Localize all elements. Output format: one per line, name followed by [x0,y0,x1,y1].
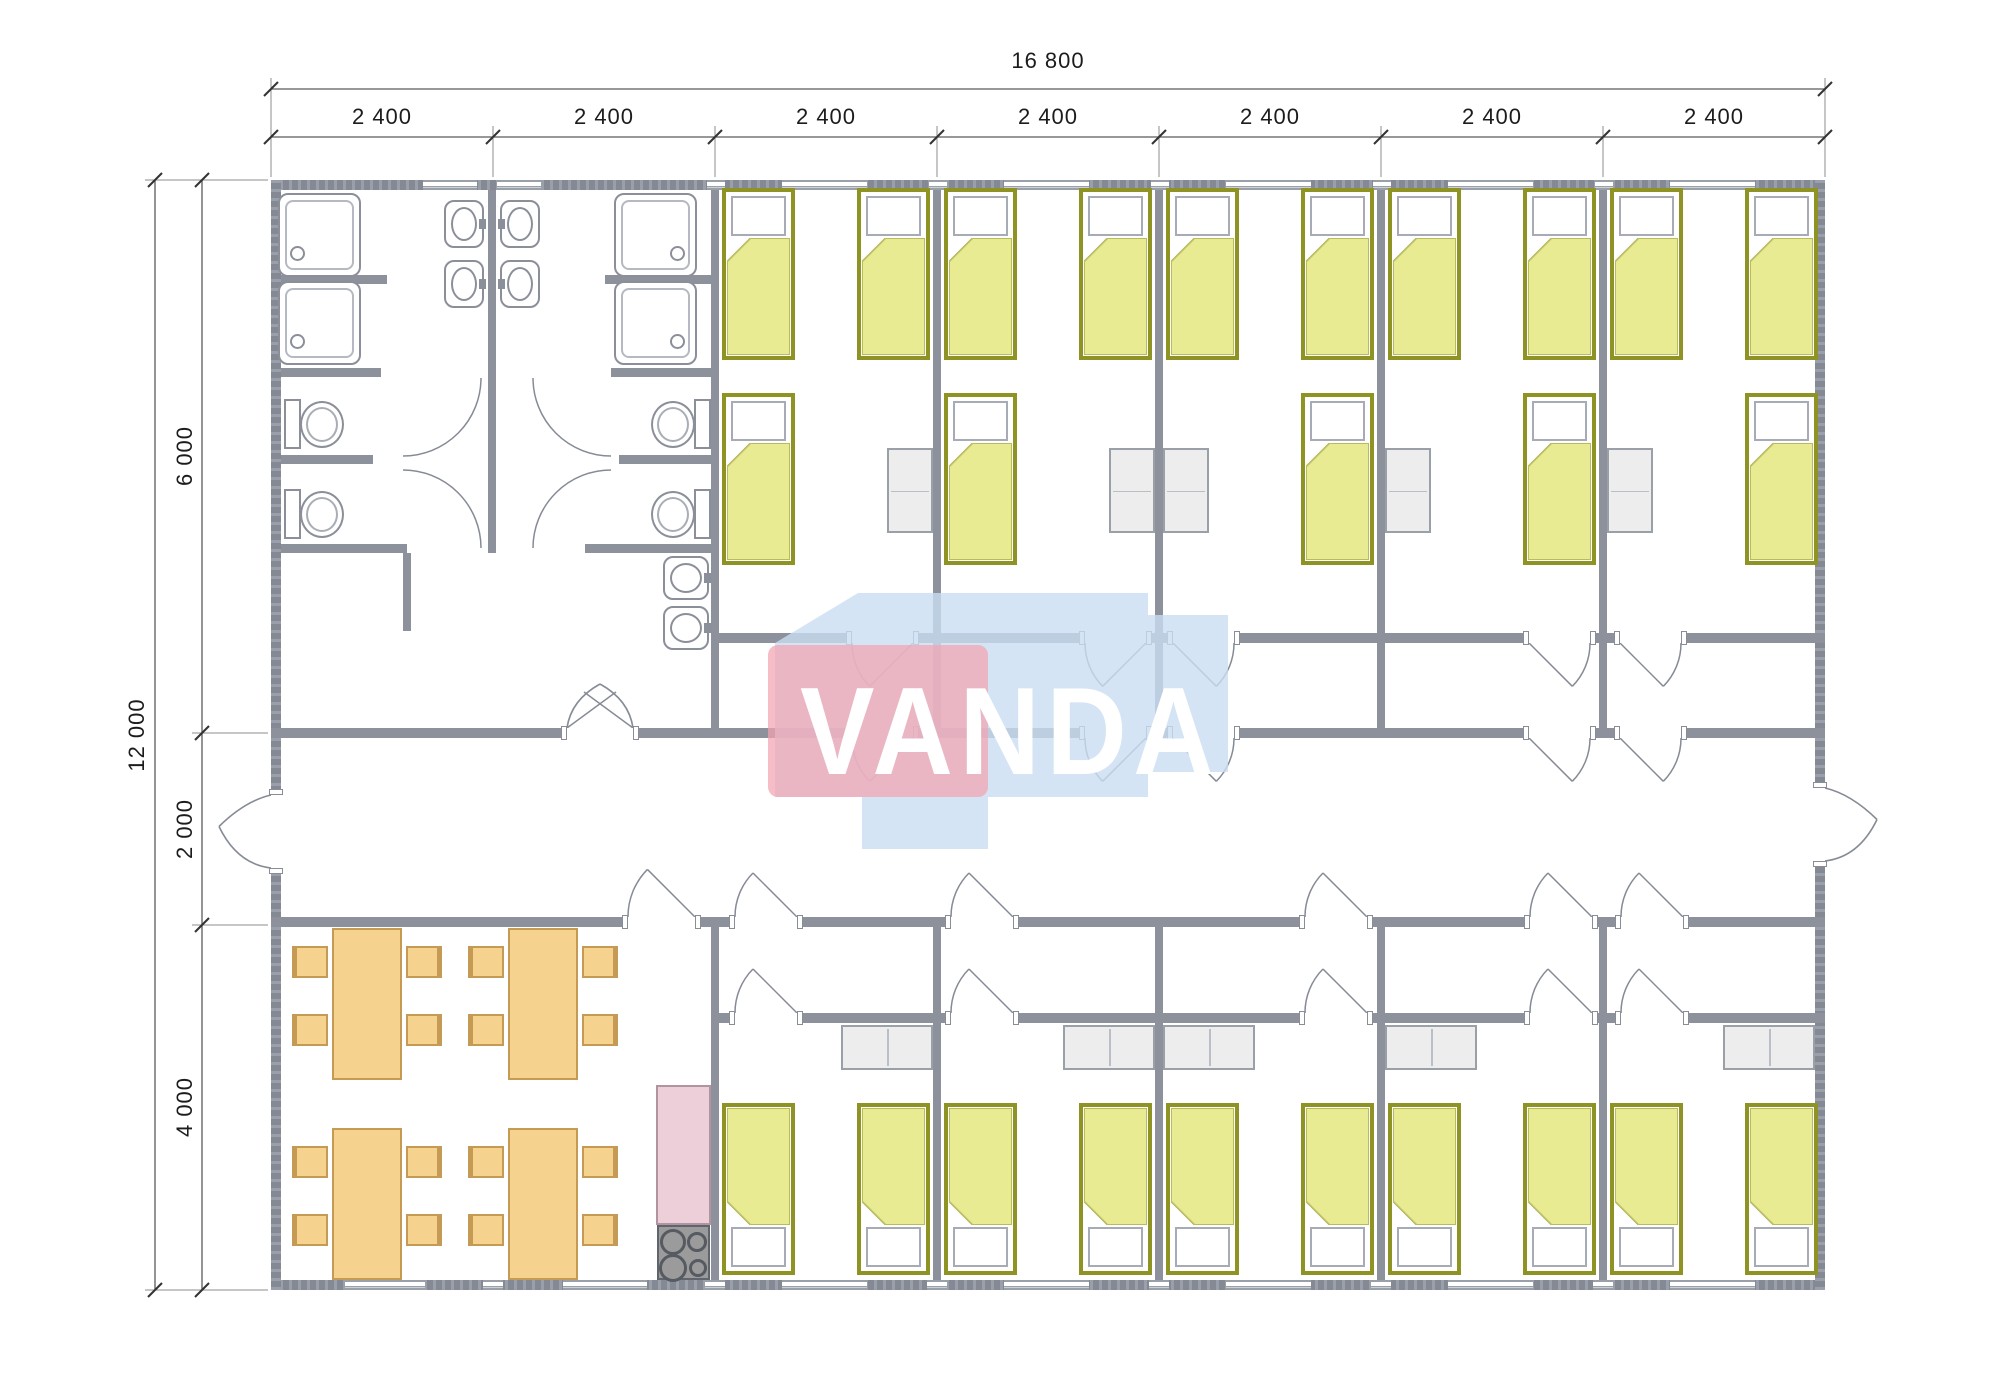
dining-chair [468,1214,504,1246]
door-jamb [1523,726,1529,740]
wardrobe [1385,1025,1477,1070]
dimension-tick [1374,130,1388,144]
dining-chair [582,946,618,978]
door-jamb [622,915,628,929]
wardrobe-divider [1167,491,1205,493]
door-leaf [1620,643,1663,686]
bed-pillow [953,401,1008,441]
door-opening [735,917,797,927]
bed [1610,1103,1683,1275]
bed-blanket-fold [1750,238,1774,262]
shower-tray [614,193,697,277]
bed-pillow [953,1227,1008,1267]
door-opening [735,1013,797,1023]
stove-burner-icon [689,1259,707,1277]
bed-pillow [1619,1227,1674,1267]
door-jamb [1524,915,1530,929]
door-jamb [1367,915,1373,929]
door-swing-arc [1663,643,1681,686]
door-leaf [1529,738,1572,781]
entrance-door-leaf [1825,788,1877,820]
door-leaf [753,873,797,917]
bed-pillow [731,401,786,441]
door-jamb [846,631,852,645]
dining-chair [468,1014,504,1046]
wardrobe [1063,1025,1155,1070]
bed [722,1103,795,1275]
wardrobe [1385,448,1431,533]
washbasin-bowl [670,613,702,643]
door-swing-arc [1621,873,1639,917]
shower-drain-icon [670,334,685,349]
window [705,1280,725,1290]
double-door-swing-arc [600,684,633,728]
wall [711,927,719,1280]
door-swing-arc [951,873,969,917]
wardrobe-divider [887,1029,889,1066]
wall [619,455,711,464]
dimension-module-width: 2 400 [1654,104,1774,130]
bed-blanket-fold [949,238,973,262]
bed-blanket-fold [1306,1201,1330,1225]
washbasin-bowl [507,207,533,241]
washbasin-bowl [451,207,477,241]
bed-pillow [866,196,921,236]
door-opening [1620,728,1681,738]
door-leaf [753,969,797,1013]
door-opening [951,1013,1013,1023]
dimension-tick [148,173,162,187]
door-opening [1529,728,1590,738]
dining-table [508,928,578,1080]
toilet [649,486,711,540]
wardrobe [1109,448,1155,533]
dining-chair [582,1214,618,1246]
toilet-tank [694,399,711,449]
bed [1523,188,1596,360]
door-jamb [1614,726,1620,740]
wardrobe [1163,1025,1255,1070]
bed-pillow [1754,401,1809,441]
wall [281,544,407,553]
door-jamb [1234,726,1240,740]
dining-table [332,1128,402,1280]
dimension-tick [708,130,722,144]
washbasin-bowl [670,563,702,593]
window [497,180,541,190]
toilet [649,396,711,450]
door-jamb [1683,1011,1689,1025]
dimension-tick [1818,82,1832,96]
bed-pillow [1532,1227,1587,1267]
double-door-leaf [584,692,633,728]
toilet-tank [284,399,301,449]
door-swing-arc [1530,969,1548,1013]
shower-tray [278,193,361,277]
door-swing-arc [533,470,611,548]
dining-chair [406,946,442,978]
wall [1155,927,1163,1280]
bed [1523,393,1596,565]
dimension-tick [1596,130,1610,144]
door-jamb [1813,782,1827,788]
door-leaf [1639,969,1683,1013]
wall [933,927,941,1280]
bed [857,188,930,360]
door-jamb [1299,915,1305,929]
bed-blanket-fold [862,238,886,262]
door-opening [567,728,633,738]
stove-burner-icon [687,1232,707,1252]
entrance-door-leaf [219,795,271,827]
dimension-module-width: 2 400 [1210,104,1330,130]
door-opening [1173,633,1234,643]
door-swing-arc [1305,873,1323,917]
bed [722,188,795,360]
wardrobe-divider [1769,1029,1771,1066]
entrance-door-opening [1815,788,1825,861]
wardrobe-divider [1611,491,1649,493]
door-opening [1530,917,1592,927]
door-jamb [1146,631,1152,645]
door-swing-arc [735,873,753,917]
shower-drain-icon [670,246,685,261]
door-swing-arc [1572,643,1590,686]
door-jamb [797,1011,803,1025]
window [1004,1280,1089,1290]
bed [1745,393,1818,565]
bed-pillow [1619,196,1674,236]
bed [722,393,795,565]
dining-chair [468,946,504,978]
wall [585,544,711,553]
bed-blanket-fold [1528,443,1552,467]
dimension-tick [195,1283,209,1297]
shower-drain-icon [290,246,305,261]
wardrobe-divider [1209,1029,1211,1066]
door-jamb [729,915,735,929]
bed-blanket-fold [727,238,751,262]
washbasin [444,260,484,308]
bed-pillow [1754,1227,1809,1267]
door-leaf [1323,873,1367,917]
door-jamb [1299,1011,1305,1025]
bed-blanket-fold [1528,1201,1552,1225]
door-swing-arc [1305,969,1323,1013]
door-opening [1305,1013,1367,1023]
dimension-top-total: 16 800 [948,48,1148,74]
bed-pillow [1532,196,1587,236]
bed-blanket-fold [1393,238,1417,262]
double-door-leaf [567,692,616,728]
wall [281,455,373,464]
dimension-tick [195,918,209,932]
window [423,180,477,190]
door-opening [628,917,695,927]
door-jamb [1167,631,1173,645]
door-swing-arc [403,378,481,456]
toilet-bowl-inner [306,497,338,532]
bed-blanket-fold [1084,1201,1108,1225]
entrance-door-opening [271,795,281,868]
floor-plan-canvas: 16 800 12 000 VANDA 2 4002 4002 4002 400… [0,0,2000,1391]
window [345,1280,425,1290]
bed-pillow [1397,196,1452,236]
bed-pillow [1175,1227,1230,1267]
bed [1388,188,1461,360]
dining-chair [582,1146,618,1178]
bed-blanket-fold [1750,443,1774,467]
door-opening [1085,633,1146,643]
wall [1377,927,1385,1280]
wardrobe [1723,1025,1815,1070]
shower-tray [614,281,697,365]
dining-chair [468,1146,504,1178]
bed-blanket-fold [1084,238,1108,262]
bed-blanket-fold [862,1201,886,1225]
window [1448,1280,1533,1290]
door-jamb [729,1011,735,1025]
dimension-tick [195,726,209,740]
bed [1388,1103,1461,1275]
door-swing-arc [735,969,753,1013]
entrance-door-swing-arc [219,827,271,869]
door-jamb [913,631,919,645]
bed-blanket-fold [1171,238,1195,262]
shower-drain-icon [290,334,305,349]
bed-pillow [866,1227,921,1267]
bed-blanket-fold [1306,238,1330,262]
bed-blanket-fold [1615,1201,1639,1225]
wall [281,368,381,377]
door-leaf [647,869,695,917]
wardrobe-divider [891,491,929,493]
wall [1155,190,1163,738]
door-leaf [1639,873,1683,917]
bed-blanket-fold [1615,238,1639,262]
window [1371,1280,1391,1290]
bed [1079,188,1152,360]
door-jamb [633,726,639,740]
washbasin [663,556,709,600]
bed [857,1103,930,1275]
window [1670,1280,1755,1290]
door-jamb [1079,631,1085,645]
toilet [284,486,346,540]
washbasin-bowl [451,267,477,301]
dining-chair [406,1214,442,1246]
dimension-tick [148,1283,162,1297]
bed-pillow [1175,196,1230,236]
bed-pillow [731,1227,786,1267]
dimension-module-width: 2 400 [988,104,1108,130]
bed [944,188,1017,360]
dimension-tick [195,173,209,187]
door-opening [951,917,1013,927]
wardrobe [1163,448,1209,533]
watermark-logo-text: VANDA [790,666,1231,798]
window [927,1280,947,1290]
bed-blanket-fold [727,443,751,467]
door-leaf [1548,969,1592,1013]
door-swing-arc [1663,738,1681,781]
dining-table [508,1128,578,1280]
bed-blanket-fold [1528,238,1552,262]
door-opening [1620,633,1681,643]
dimension-left-segment: 2 000 [172,769,198,889]
bed [1166,188,1239,360]
toilet-tank [284,489,301,539]
bed [1079,1103,1152,1275]
washbasin [444,200,484,248]
wall [1599,927,1607,1280]
dimension-left-segment: 6 000 [172,396,198,516]
wardrobe [887,448,933,533]
window [1593,1280,1613,1290]
bed-pillow [1310,196,1365,236]
door-jamb [1590,726,1596,740]
shower-tray [278,281,361,365]
door-jamb [1590,631,1596,645]
door-jamb [1681,726,1687,740]
bed-pillow [1532,401,1587,441]
door-jamb [269,789,283,795]
door-jamb [1683,915,1689,929]
bed-blanket-fold [949,1201,973,1225]
door-jamb [561,726,567,740]
bed [1745,188,1818,360]
bed-blanket-fold [1393,1201,1417,1225]
door-opening [1530,1013,1592,1023]
window [782,1280,867,1290]
dining-chair [292,1214,328,1246]
bed [1745,1103,1818,1275]
wall [403,553,411,631]
bed [1301,393,1374,565]
door-jamb [1813,861,1827,867]
double-door-swing-arc [567,684,600,728]
door-jamb [1592,1011,1598,1025]
bed-blanket-fold [1306,443,1330,467]
kitchen-counter [656,1085,711,1225]
door-jamb [1615,1011,1621,1025]
dimension-left-total: 12 000 [124,675,150,795]
door-jamb [945,1011,951,1025]
door-opening [1529,633,1590,643]
wardrobe-divider [1431,1029,1433,1066]
door-leaf [969,873,1013,917]
washbasin-tap-icon [704,573,711,583]
door-leaf [969,969,1013,1013]
dining-chair [292,946,328,978]
door-jamb [1013,1011,1019,1025]
door-jamb [1523,631,1529,645]
toilet-bowl [651,491,695,538]
bed-blanket-fold [949,443,973,467]
door-swing-arc [628,869,647,917]
door-swing-arc [1621,969,1639,1013]
dimension-tick [1818,130,1832,144]
door-jamb [1614,631,1620,645]
bed-blanket-fold [1171,1201,1195,1225]
dining-table [332,928,402,1080]
washbasin [500,260,540,308]
stove-burner-icon [660,1229,686,1255]
bed-pillow [1754,196,1809,236]
dimension-tick [264,130,278,144]
window [1149,1280,1169,1290]
washbasin-bowl [507,267,533,301]
wall [1599,190,1607,738]
bed-blanket-fold [1750,1201,1774,1225]
toilet-bowl-inner [306,407,338,442]
dimension-module-width: 2 400 [544,104,664,130]
door-opening [1621,917,1683,927]
door-leaf [1548,873,1592,917]
wardrobe-divider [1109,1029,1111,1066]
door-leaf [1529,643,1572,686]
bed-pillow [1310,1227,1365,1267]
dimension-tick [264,82,278,96]
door-jamb [1013,915,1019,929]
door-swing-arc [403,470,481,548]
dimension-left-segment: 4 000 [172,1047,198,1167]
dimension-tick [486,130,500,144]
toilet-bowl [300,491,344,538]
bed [1610,188,1683,360]
bed [944,1103,1017,1275]
wall [711,190,719,728]
washbasin [663,606,709,650]
wardrobe [841,1025,933,1070]
bed-pillow [1088,196,1143,236]
door-swing-arc [1572,738,1590,781]
door-jamb [1681,631,1687,645]
door-jamb [1615,915,1621,929]
bed [1301,1103,1374,1275]
toilet-bowl-inner [657,497,689,532]
dimension-module-width: 2 400 [766,104,886,130]
dimension-module-width: 2 400 [322,104,442,130]
dining-chair [406,1014,442,1046]
washbasin-tap-icon [498,219,505,229]
door-jamb [1524,1011,1530,1025]
bed-pillow [1397,1227,1452,1267]
window [563,1280,647,1290]
door-jamb [695,915,701,929]
dining-chair [406,1146,442,1178]
door-jamb [797,915,803,929]
toilet [284,396,346,450]
washbasin [500,200,540,248]
door-jamb [269,868,283,874]
bed-pillow [1088,1227,1143,1267]
door-swing-arc [533,378,611,456]
bed [1166,1103,1239,1275]
bed [1523,1103,1596,1275]
wardrobe [1607,448,1653,533]
washbasin-tap-icon [479,219,486,229]
wall [611,368,711,377]
bed-pillow [953,196,1008,236]
dimension-tick [930,130,944,144]
washbasin-tap-icon [704,623,711,633]
door-opening [1305,917,1367,927]
dining-chair [582,1014,618,1046]
door-opening [1621,1013,1683,1023]
door-jamb [1367,1011,1373,1025]
wall [488,190,496,553]
